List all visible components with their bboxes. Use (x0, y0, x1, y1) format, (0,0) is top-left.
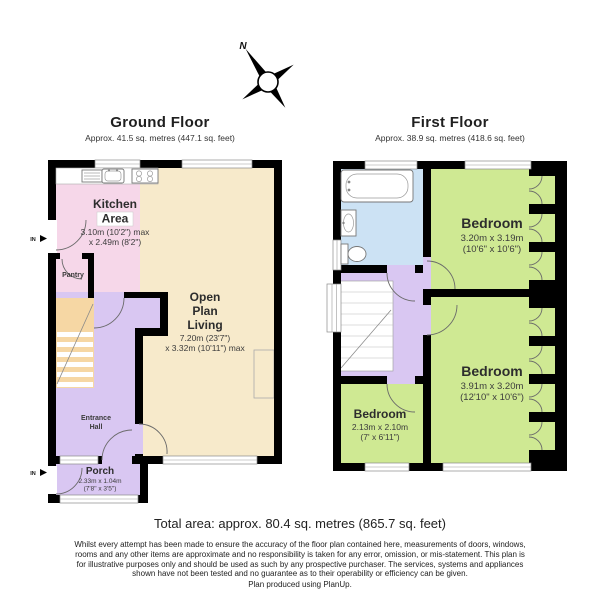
bedroom3-dim1: 2.13m x 2.10m (352, 422, 408, 432)
floorplan-page: N Ground Floor Approx. 41.5 sq. metres (… (0, 0, 600, 600)
hall-label-line1: Entrance (81, 415, 111, 422)
doorway (60, 253, 82, 259)
doorway (94, 292, 124, 298)
compass-north-label: N (239, 41, 247, 52)
drainer-icon (82, 170, 102, 182)
porch-door-opening (47, 466, 57, 494)
doorway (135, 424, 143, 454)
first-floor-header: First Floor Approx. 38.9 sq. metres (418… (328, 114, 572, 143)
first-floor-area-subtitle: Approx. 38.9 sq. metres (418.6 sq. feet) (328, 133, 572, 143)
ground-floor-header: Ground Floor Approx. 41.5 sq. metres (44… (38, 114, 282, 143)
kitchen-dim1: 3.10m (10'2") max (81, 227, 151, 237)
bedroom1-label: Bedroom (461, 215, 522, 231)
doorway (387, 265, 415, 273)
doorway (387, 376, 415, 384)
bedroom1-dim1: 3.20m x 3.19m (461, 233, 524, 244)
doorway (423, 305, 431, 335)
living-dim1: 7.20m (23'7") (180, 333, 231, 343)
compass-rose-icon: N (222, 38, 312, 120)
kitchen-counter (56, 168, 158, 184)
living-label-line2: Plan (192, 304, 217, 318)
bedroom2-dim1: 3.91m x 3.20m (461, 381, 524, 392)
entrance-arrow-front: IN (30, 235, 47, 243)
bathtub-icon (341, 170, 413, 202)
living-dim2: x 3.32m (10'11") max (165, 343, 245, 353)
disclaimer-block: Whilst every attempt has been made to en… (70, 540, 530, 590)
in-label: IN (30, 237, 36, 243)
total-area-text: Total area: approx. 80.4 sq. metres (865… (0, 516, 600, 531)
kitchen-sink-icon (102, 169, 124, 183)
porch-label: Porch (86, 466, 114, 477)
staircase-ground (56, 298, 94, 388)
entrance-arrow-icon (40, 235, 47, 242)
bedroom3-label: Bedroom (354, 407, 407, 421)
ground-floor-title: Ground Floor (38, 114, 282, 131)
kitchen-dim2: x 2.49m (8'2") (89, 237, 142, 247)
sink-icon (341, 210, 356, 236)
bedroom2-dim2: (12'10" x 10'6") (460, 392, 524, 403)
porch-dim1: 2.33m x 1.04m (79, 478, 122, 485)
credit-text: Plan produced using PlanUp. (70, 580, 530, 590)
hall-label-line2: Hall (90, 424, 103, 431)
pantry-label: Pantry (62, 272, 84, 279)
ground-floor-plan: Kitchen Area 3.10m (10'2") max x 2.49m (… (25, 158, 290, 516)
first-floor-title: First Floor (328, 114, 572, 131)
bedroom1-dim2: (10'6" x 10'6") (463, 244, 521, 255)
doorway (102, 456, 132, 464)
doorway (423, 257, 431, 289)
porch-dim2: (7'8" x 3'5") (84, 486, 117, 493)
staircase-first (339, 281, 393, 371)
ground-floor-area-subtitle: Approx. 41.5 sq. metres (447.1 sq. feet) (38, 133, 282, 143)
disclaimer-text: Whilst every attempt has been made to en… (74, 540, 525, 578)
bedroom2-label: Bedroom (461, 363, 522, 379)
kitchen-label-line1: Kitchen (93, 197, 137, 211)
living-label-line1: Open (190, 290, 221, 304)
in-label: IN (30, 471, 36, 477)
entrance-arrow-porch: IN (30, 469, 47, 477)
compass-hub (258, 72, 278, 92)
entrance-arrow-icon (40, 469, 47, 476)
bedroom3-dim2: (7' x 6'11") (360, 432, 399, 442)
first-floor-plan: Bedroom 3.20m x 3.19m (10'6" x 10'6") Be… (325, 158, 575, 513)
hob-icon (132, 169, 158, 183)
front-door-opening (47, 220, 57, 253)
kitchen-label-line2: Area (102, 212, 129, 226)
living-label-line3: Living (187, 318, 222, 332)
